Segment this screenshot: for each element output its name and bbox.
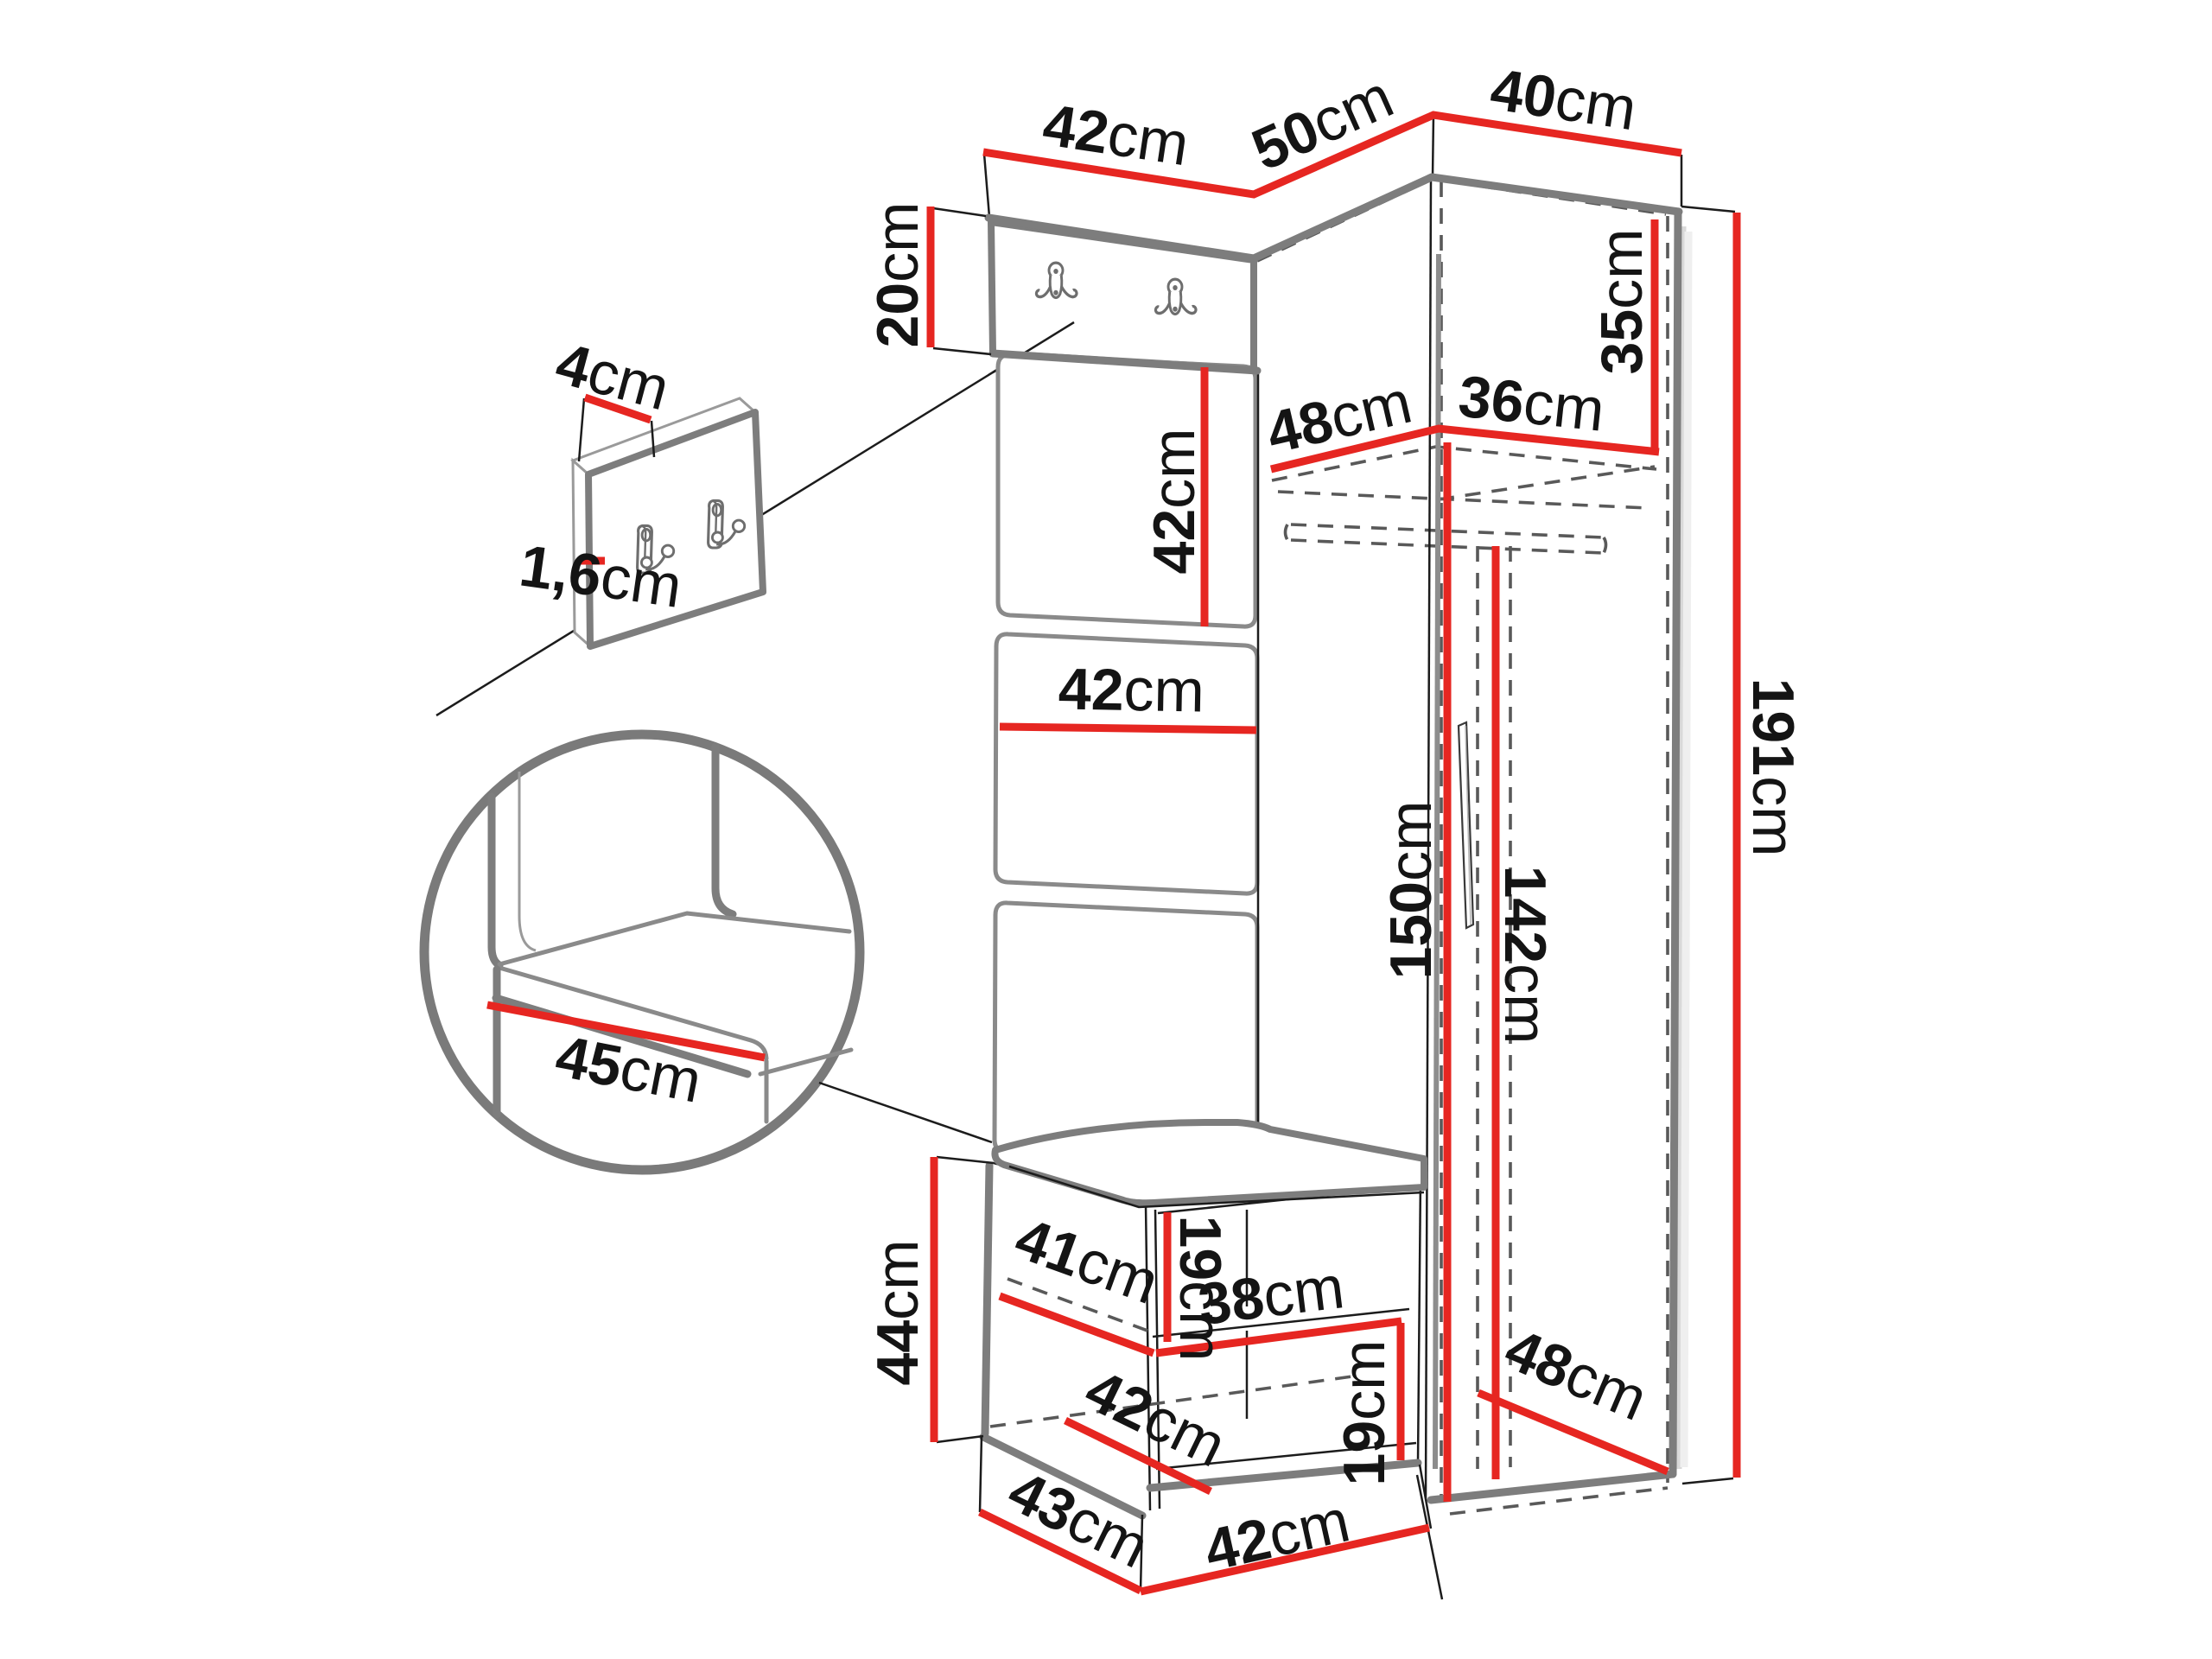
svg-text:42cm: 42cm bbox=[1058, 655, 1205, 725]
svg-text:20cm: 20cm bbox=[863, 202, 931, 348]
svg-text:42cm: 42cm bbox=[1140, 429, 1207, 575]
svg-text:19cm: 19cm bbox=[1330, 1340, 1397, 1486]
svg-text:35cm: 35cm bbox=[1587, 229, 1655, 375]
svg-text:191cm: 191cm bbox=[1740, 678, 1808, 857]
svg-text:142cm: 142cm bbox=[1492, 866, 1560, 1045]
svg-text:150cm: 150cm bbox=[1376, 801, 1444, 980]
svg-text:44cm: 44cm bbox=[863, 1240, 931, 1386]
